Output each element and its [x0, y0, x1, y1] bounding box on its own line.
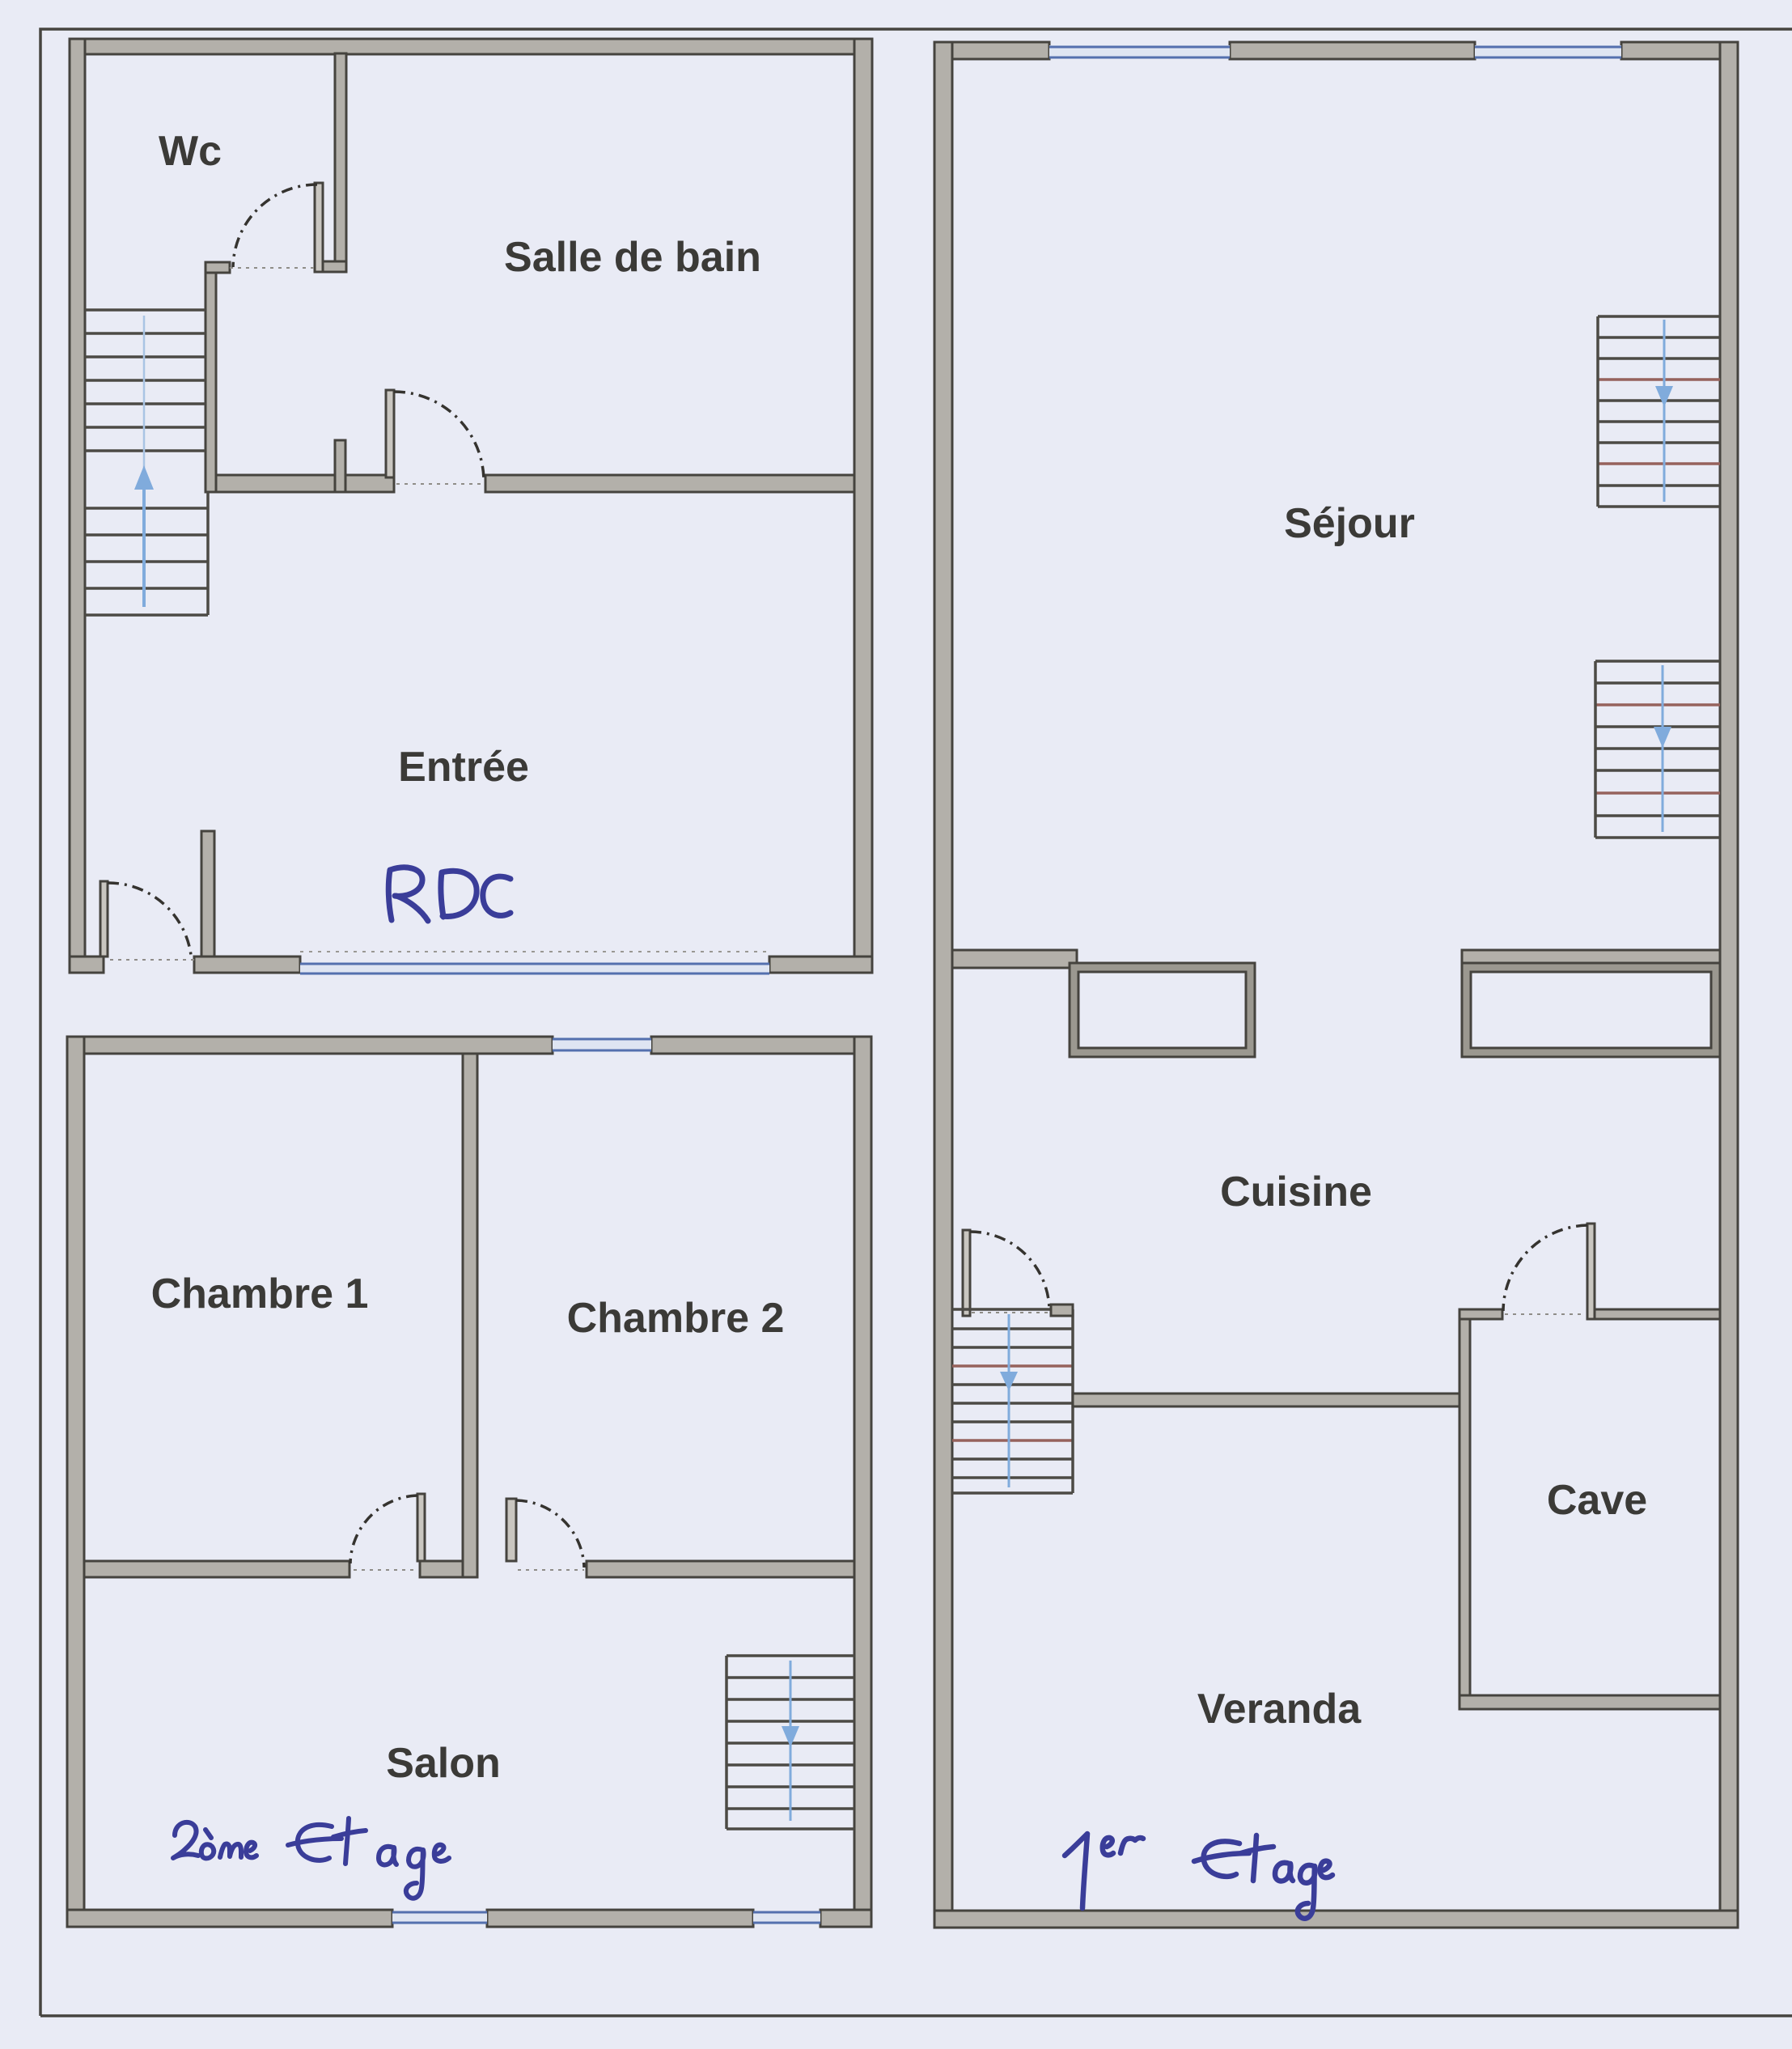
svg-text:Cuisine: Cuisine — [1220, 1169, 1372, 1215]
svg-text:Veranda: Veranda — [1197, 1686, 1362, 1733]
svg-text:Cave: Cave — [1547, 1477, 1647, 1524]
svg-text:Chambre 1: Chambre 1 — [151, 1271, 369, 1317]
svg-text:Wc: Wc — [159, 128, 222, 175]
svg-text:Chambre 2: Chambre 2 — [567, 1295, 785, 1342]
svg-text:Salon: Salon — [386, 1740, 501, 1787]
svg-text:Salle de bain: Salle de bain — [504, 234, 761, 281]
svg-text:Séjour: Séjour — [1284, 500, 1415, 547]
svg-text:Entrée: Entrée — [398, 744, 529, 791]
